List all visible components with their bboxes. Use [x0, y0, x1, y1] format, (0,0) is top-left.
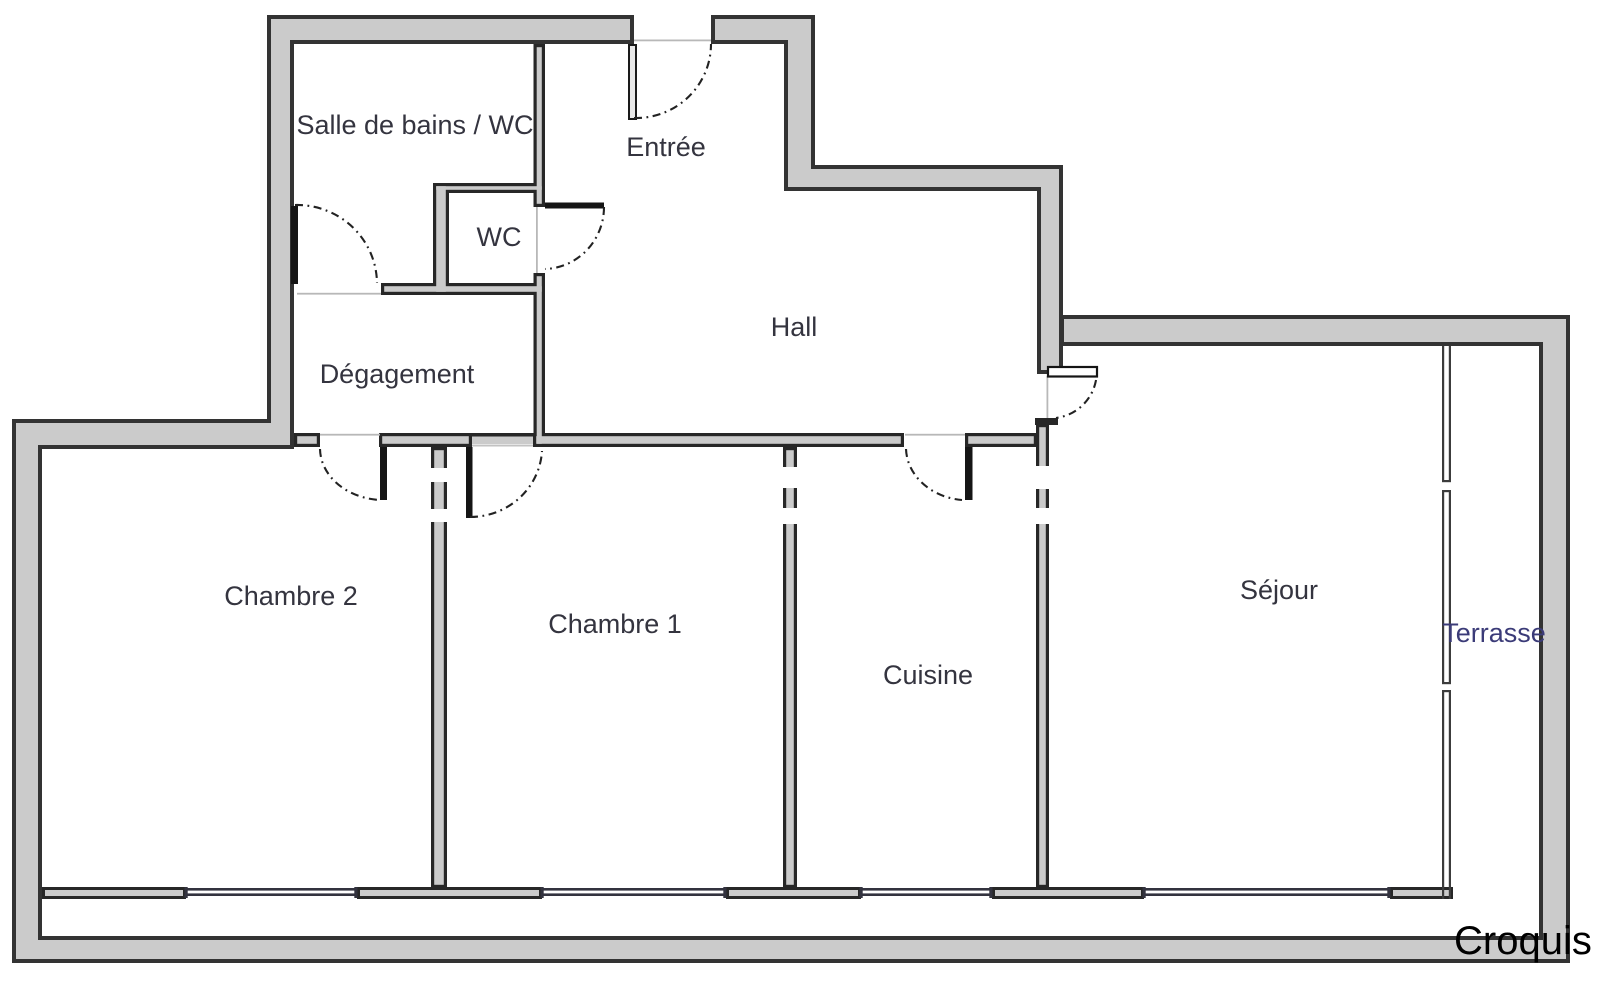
svg-text:Chambre 2: Chambre 2 [224, 581, 358, 611]
svg-text:WC: WC [477, 222, 522, 252]
svg-text:Entrée: Entrée [626, 132, 706, 162]
svg-text:Terrasse: Terrasse [1442, 618, 1546, 648]
svg-text:Cuisine: Cuisine [883, 660, 973, 690]
svg-text:Croquis: Croquis [1454, 919, 1592, 963]
svg-text:Chambre 1: Chambre 1 [548, 609, 682, 639]
svg-text:Séjour: Séjour [1240, 575, 1318, 605]
svg-text:Salle de bains / WC: Salle de bains / WC [296, 110, 533, 140]
svg-text:Hall: Hall [771, 312, 818, 342]
svg-text:Dégagement: Dégagement [320, 359, 475, 389]
